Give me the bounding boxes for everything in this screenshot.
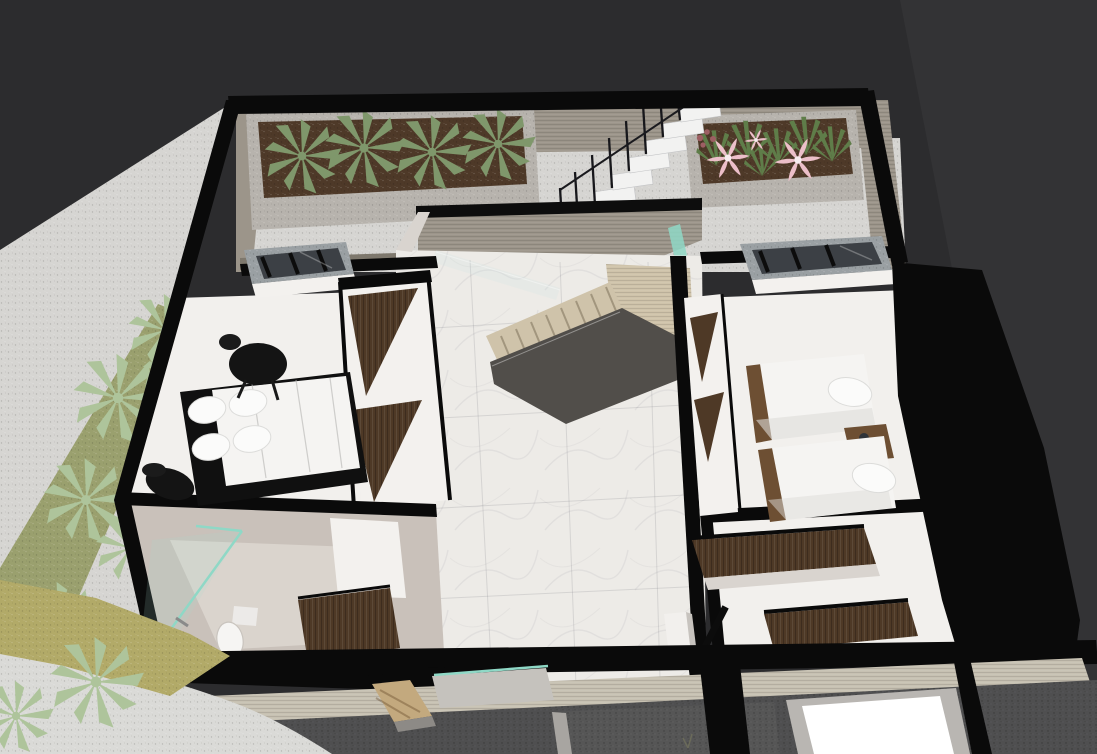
bathroom-wall-column bbox=[330, 518, 406, 598]
light-well-glow bbox=[802, 696, 954, 754]
lily-bud-icon bbox=[700, 142, 705, 147]
lily-bud-icon bbox=[704, 129, 710, 135]
toilet-tank bbox=[232, 606, 258, 626]
armchair-back bbox=[142, 463, 166, 477]
double-bed-duvet bbox=[212, 376, 360, 486]
stool bbox=[219, 334, 241, 350]
render-canvas bbox=[0, 0, 1097, 754]
window-right-bedroom bbox=[740, 236, 896, 294]
lily-bud-icon bbox=[697, 135, 703, 141]
twin-bed-2 bbox=[758, 436, 899, 522]
round-side-table bbox=[229, 343, 287, 385]
lily-bud-icon bbox=[710, 136, 716, 142]
floor-plan-render bbox=[0, 0, 1097, 754]
